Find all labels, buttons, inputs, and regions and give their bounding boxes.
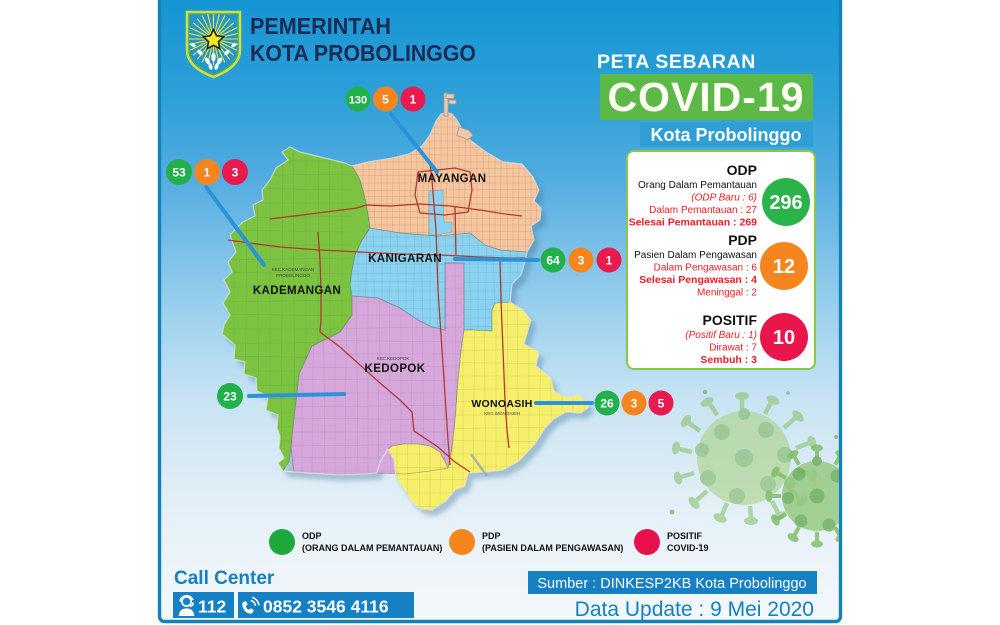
svg-text:5: 5 [658,397,665,411]
svg-text:Sembuh : 3: Sembuh : 3 [700,354,757,366]
svg-text:KEDOPOK: KEDOPOK [365,363,426,375]
svg-text:23: 23 [223,390,237,404]
svg-text:Dalam Pemantauan : 27: Dalam Pemantauan : 27 [649,205,757,216]
svg-text:3: 3 [578,254,585,268]
svg-text:1: 1 [606,254,613,268]
svg-text:Meninggal : 2: Meninggal : 2 [697,288,757,299]
svg-text:ODP: ODP [302,531,322,541]
svg-text:(PASIEN DALAM PENGAWASAN): (PASIEN DALAM PENGAWASAN) [482,543,623,553]
svg-text:PROBOLINGGO: PROBOLINGGO [276,273,310,278]
svg-text:Call Center: Call Center [174,568,275,589]
svg-text:KEC.KEDOPOK: KEC.KEDOPOK [377,356,410,361]
svg-text:COVID-19: COVID-19 [607,74,804,120]
svg-text:KEC.WONOASIH: KEC.WONOASIH [484,411,520,416]
svg-text:MAYANGAN: MAYANGAN [418,173,487,185]
svg-text:KADEMANGAN: KADEMANGAN [253,285,341,297]
svg-text:1: 1 [204,166,211,180]
svg-text:COVID-19: COVID-19 [667,543,709,553]
svg-text:(ODP Baru : 6): (ODP Baru : 6) [691,193,757,204]
svg-text:PETA SEBARAN: PETA SEBARAN [597,51,756,73]
svg-text:Dalam Pengawasan : 6: Dalam Pengawasan : 6 [654,263,758,274]
svg-text:PEMERINTAH: PEMERINTAH [250,13,391,39]
svg-text:PDP: PDP [728,232,757,248]
svg-text:5: 5 [382,93,389,107]
svg-text:Selesai Pemantauan : 269: Selesai Pemantauan : 269 [629,217,758,229]
svg-text:Dirawat : 7: Dirawat : 7 [709,343,757,354]
svg-text:10: 10 [773,327,795,349]
svg-text:KEC.KADEMANGAN: KEC.KADEMANGAN [272,267,315,272]
svg-text:3: 3 [631,397,638,411]
svg-text:(ORANG DALAM PEMANTAUAN): (ORANG DALAM PEMANTAUAN) [302,543,442,553]
svg-text:Orang Dalam Pemantauan: Orang Dalam Pemantauan [638,180,757,191]
svg-text:1: 1 [410,93,417,107]
svg-text:Sumber : DINKESP2KB Kota Probo: Sumber : DINKESP2KB Kota Probolinggo [537,576,806,592]
svg-text:POSITIF: POSITIF [703,312,758,328]
svg-text:ODP: ODP [727,162,757,178]
svg-text:3: 3 [232,166,239,180]
svg-text:64: 64 [546,254,560,268]
svg-text:Selesai Pengawasan : 4: Selesai Pengawasan : 4 [639,274,757,286]
svg-text:WONOASIH: WONOASIH [471,398,532,410]
svg-text:53: 53 [172,166,186,180]
svg-text:12: 12 [773,256,795,278]
svg-text:112: 112 [198,597,226,617]
svg-text:Kota Probolinggo: Kota Probolinggo [651,125,802,145]
svg-text:POSITIF: POSITIF [667,531,703,541]
svg-text:KANIGARAN: KANIGARAN [368,253,442,265]
svg-text:296: 296 [769,192,802,214]
svg-text:0852 3546 4116: 0852 3546 4116 [263,597,389,617]
svg-text:PDP: PDP [482,531,501,541]
svg-text:Data Update : 9 Mei 2020: Data Update : 9 Mei 2020 [575,598,814,621]
svg-text:26: 26 [600,397,614,411]
svg-text:(Positif Baru : 1): (Positif Baru : 1) [685,330,757,341]
svg-text:Pasien Dalam Pengawasan: Pasien Dalam Pengawasan [634,250,757,261]
svg-text:KOTA PROBOLINGGO: KOTA PROBOLINGGO [250,40,476,66]
svg-text:130: 130 [349,95,367,107]
